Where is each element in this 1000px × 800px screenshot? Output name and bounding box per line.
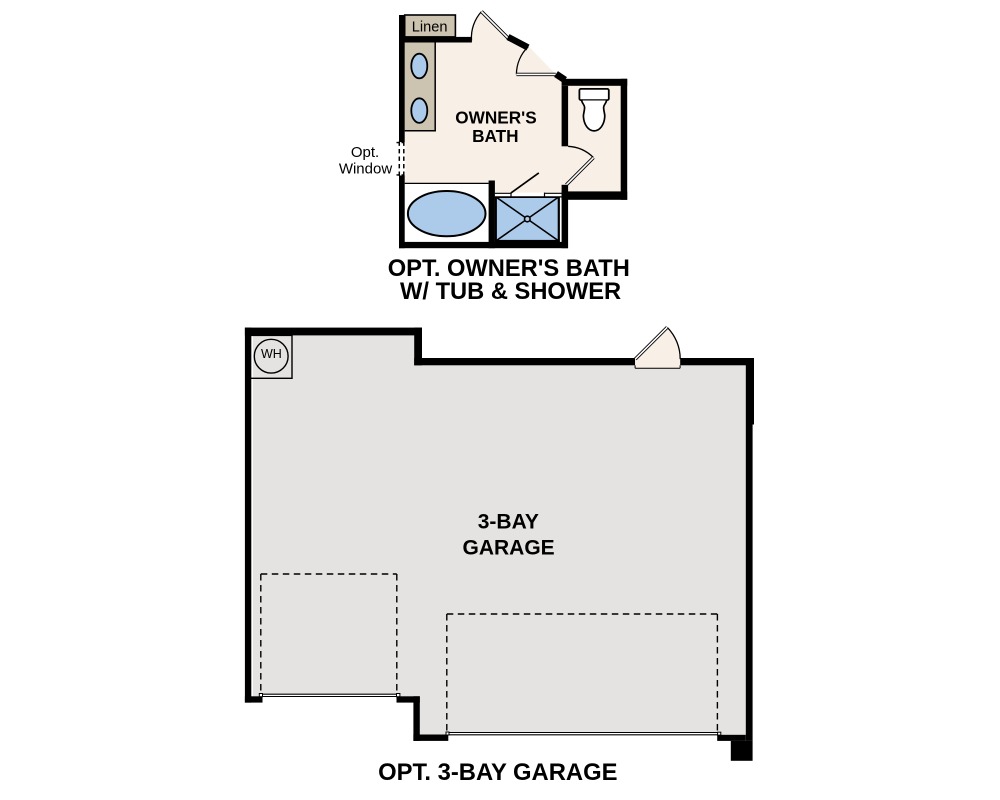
svg-text:3-BAY: 3-BAY — [478, 511, 539, 534]
svg-text:BATH: BATH — [472, 126, 518, 146]
svg-text:Linen: Linen — [412, 20, 448, 36]
svg-text:W/ TUB & SHOWER: W/ TUB & SHOWER — [400, 279, 621, 305]
svg-text:OPT. OWNER'S BATH: OPT. OWNER'S BATH — [388, 256, 630, 282]
svg-text:GARAGE: GARAGE — [463, 537, 555, 560]
svg-text:OPT. 3-BAY GARAGE: OPT. 3-BAY GARAGE — [378, 759, 617, 786]
svg-text:Opt.: Opt. — [351, 144, 379, 161]
svg-text:OWNER'S: OWNER'S — [455, 107, 536, 127]
svg-text:Window: Window — [339, 160, 393, 177]
svg-text:WH: WH — [261, 347, 282, 361]
